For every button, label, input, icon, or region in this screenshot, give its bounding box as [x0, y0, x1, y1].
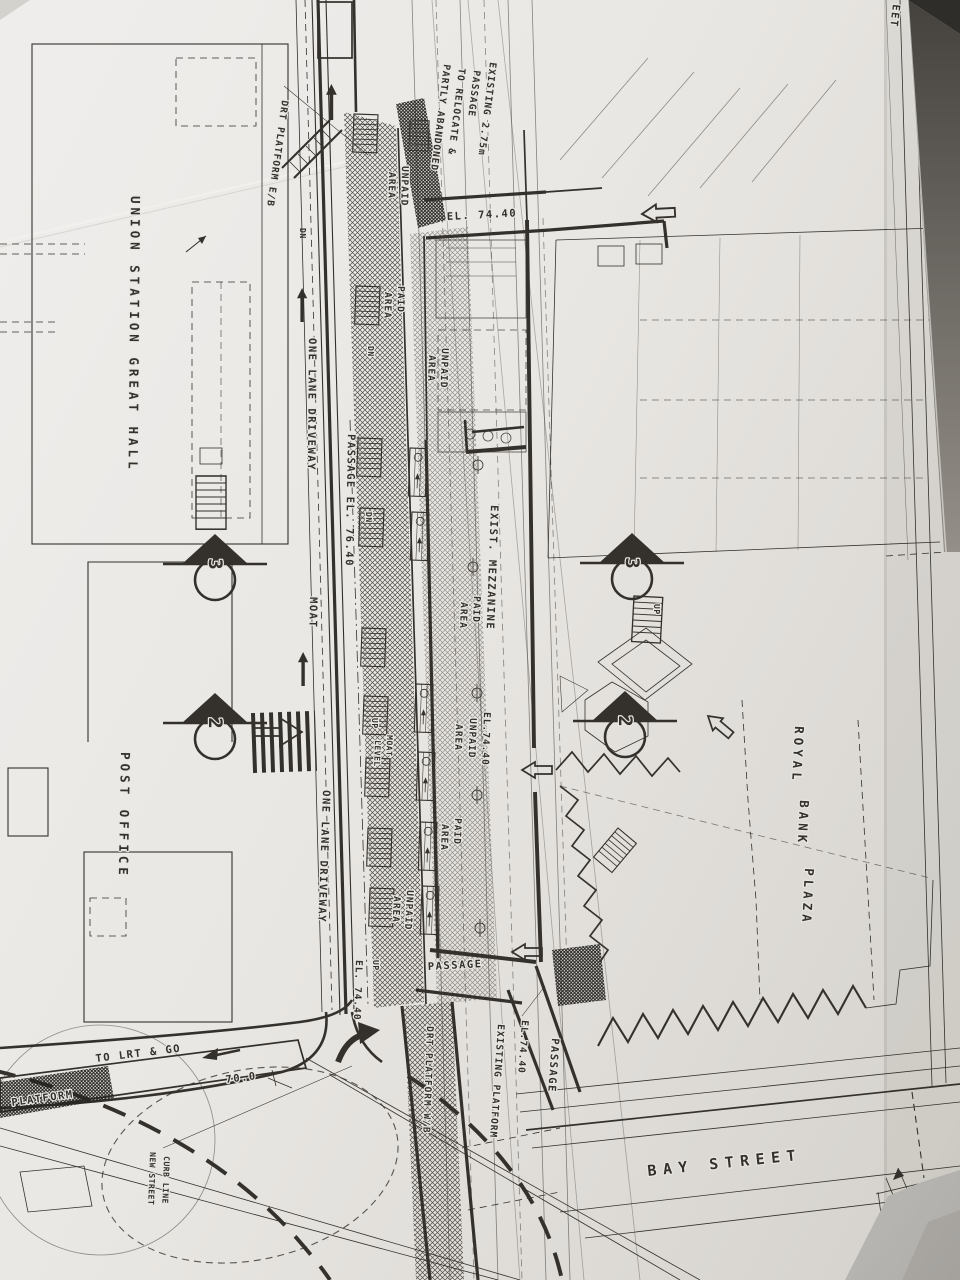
photo-overlays: [0, 0, 960, 1280]
site-plan-drawing: UNION STATION GREAT HALL DN POST OFFICE …: [0, 0, 960, 1280]
blueprint-photo: UNION STATION GREAT HALL DN POST OFFICE …: [0, 0, 960, 1280]
vignette: [0, 0, 960, 1280]
